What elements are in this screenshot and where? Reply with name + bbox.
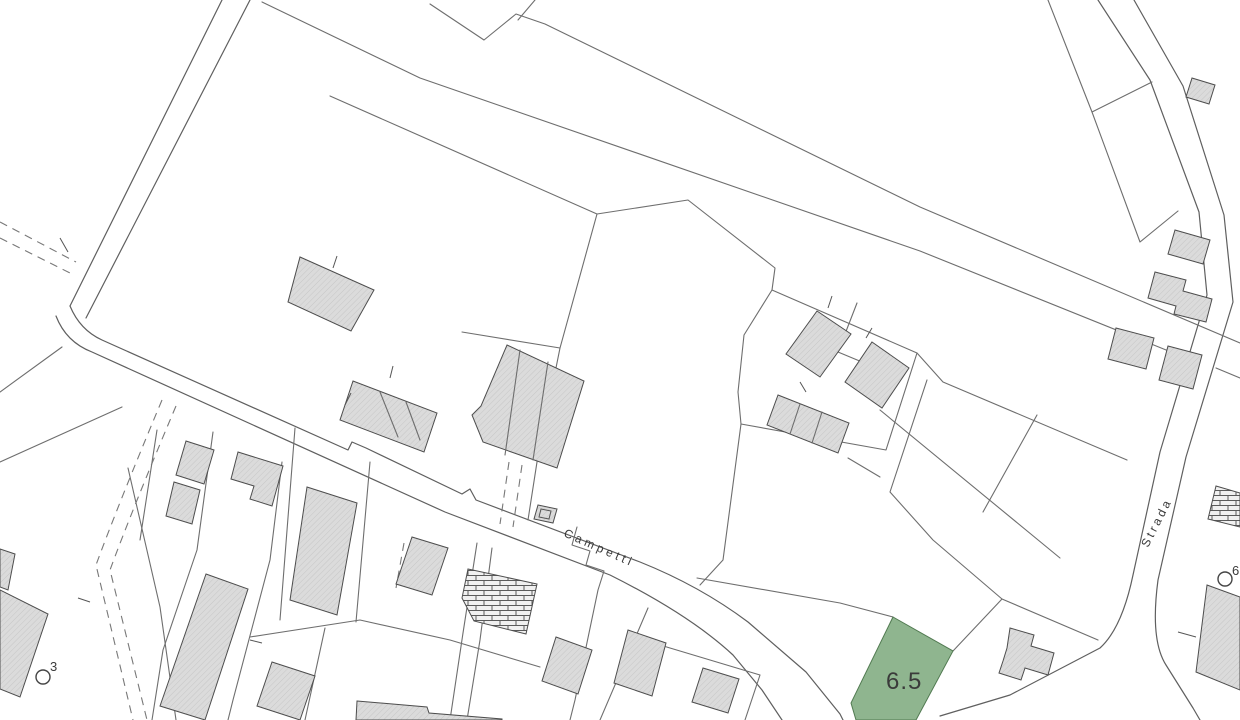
- building-small-kiosk: [534, 505, 557, 523]
- street-labels: Campetti Strada: [562, 495, 1175, 569]
- map-canvas[interactable]: 6.5 Campetti Strada 3 6: [0, 0, 1240, 720]
- building: [288, 257, 374, 331]
- building: [1168, 230, 1210, 264]
- building: [845, 342, 909, 408]
- dashed-track: [96, 400, 162, 720]
- building: [767, 395, 849, 453]
- building: [1196, 585, 1240, 690]
- survey-marker-6-group: 6: [1218, 563, 1239, 586]
- survey-marker-3-group: 3: [36, 659, 57, 684]
- building-under-construction: [1208, 486, 1240, 527]
- building: [999, 628, 1054, 680]
- dashed-track: [110, 406, 176, 720]
- road-campetti-south-edge: [56, 316, 782, 720]
- street-label-strada: Strada: [1138, 495, 1175, 549]
- building: [231, 452, 283, 506]
- building: [0, 549, 15, 590]
- building: [166, 482, 200, 524]
- building: [257, 662, 315, 720]
- building: [1148, 272, 1212, 322]
- buildings-layer: [0, 78, 1240, 720]
- road-edge: [86, 0, 250, 318]
- parcel-area-label: 6.5: [886, 668, 922, 695]
- building: [1186, 78, 1215, 104]
- highlighted-parcel-group: 6.5: [851, 617, 953, 720]
- building: [160, 574, 248, 720]
- dashed-track: [0, 238, 72, 274]
- parcel-boundaries: [0, 0, 1240, 720]
- building-under-construction: [462, 569, 537, 634]
- survey-marker-label: 3: [50, 659, 57, 674]
- building: [290, 487, 357, 615]
- dashed-track: [0, 222, 76, 262]
- building: [614, 630, 666, 696]
- building: [1108, 328, 1154, 369]
- street-label-campetti: Campetti: [562, 526, 637, 570]
- dashed-track: [513, 465, 522, 527]
- building-large-hatched: [472, 345, 584, 468]
- building: [356, 701, 502, 720]
- building: [340, 381, 437, 452]
- dashed-track: [500, 462, 509, 524]
- road-edge: [70, 0, 222, 306]
- survey-marker-circle: [36, 670, 50, 684]
- cadastral-map: 6.5 Campetti Strada 3 6: [0, 0, 1240, 720]
- survey-marker-circle: [1218, 572, 1232, 586]
- survey-marker-label: 6: [1232, 563, 1239, 578]
- building: [1159, 346, 1202, 389]
- building: [542, 637, 592, 694]
- building: [176, 441, 214, 484]
- building: [692, 668, 739, 713]
- building: [786, 311, 851, 377]
